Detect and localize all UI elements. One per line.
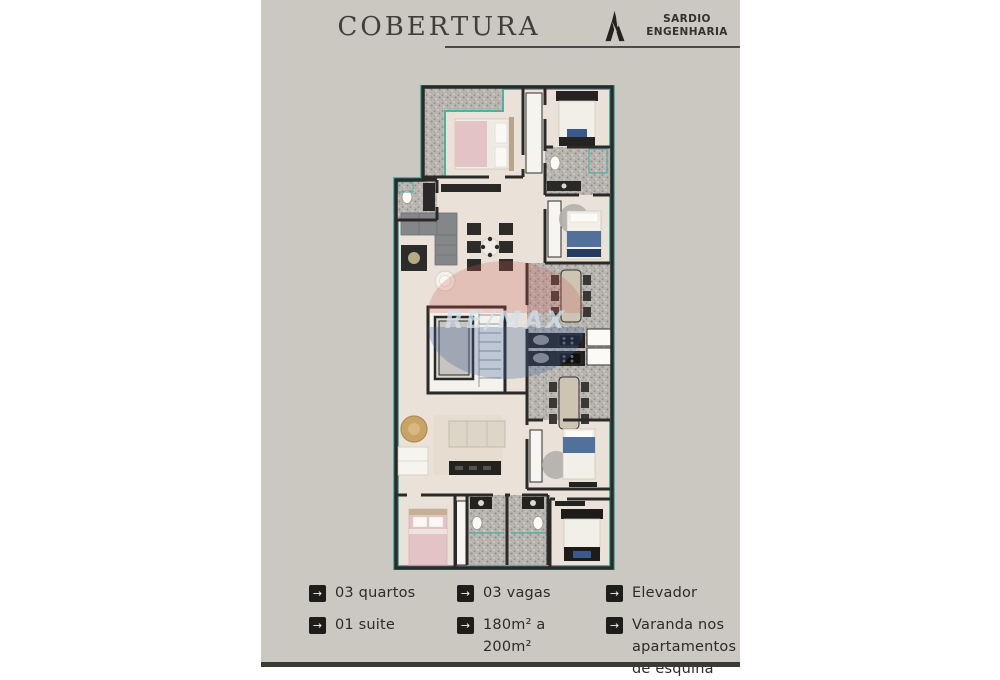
brand-logo: SARDIO ENGENHARIA: [597, 8, 739, 44]
feature-suite: → 01 suite: [309, 617, 395, 637]
brand-name-line1: SARDIO: [638, 13, 736, 26]
brand-name: SARDIO ENGENHARIA: [638, 13, 736, 38]
floor-plan: RE/MAX: [393, 85, 640, 570]
page-title: COBERTURA: [319, 12, 559, 42]
bedroom-bottom-left: [409, 501, 467, 565]
brand-name-line2: ENGENHARIA: [638, 26, 736, 39]
arrow-badge-icon: →: [457, 585, 474, 602]
sofa: [401, 213, 457, 235]
feature-label: 03 quartos: [335, 583, 415, 605]
feature-vagas: → 03 vagas: [457, 585, 551, 605]
feature-elevador: → Elevador: [606, 585, 697, 605]
arrow-badge-icon: →: [309, 617, 326, 634]
feature-label: Elevador: [632, 583, 697, 605]
wardrobe: [526, 93, 542, 173]
arrow-badge-icon: →: [606, 585, 623, 602]
bed-headboard: [556, 91, 598, 101]
wardrobe: [548, 201, 561, 257]
bedroom-right-lower: [530, 429, 597, 487]
arrow-badge-icon: →: [606, 617, 623, 634]
wardrobe: [530, 430, 542, 482]
sardio-mountain-logo-icon: [597, 8, 633, 44]
feature-label: Varanda nos apartamentos de esquina: [632, 615, 750, 680]
feature-label: 01 suite: [335, 615, 395, 637]
feature-metragem: → 180m² a 200m²: [457, 617, 563, 659]
feature-varanda: → Varanda nos apartamentos de esquina: [606, 617, 750, 680]
feature-label: 03 vagas: [483, 583, 551, 605]
footer-bar: [261, 662, 740, 667]
feature-label: 180m² a 200m²: [483, 615, 563, 659]
arrow-badge-icon: →: [309, 585, 326, 602]
bedroom-top-right: [556, 91, 598, 146]
flyer: COBERTURA SARDIO ENGENHARIA: [261, 0, 740, 667]
arrow-badge-icon: →: [457, 617, 474, 634]
toilet: [472, 517, 482, 530]
desk: [569, 482, 597, 487]
desk: [555, 501, 585, 506]
wardrobe: [457, 501, 467, 565]
bedroom-top-left: [455, 117, 514, 171]
sofa: [449, 421, 505, 447]
tv-console: [441, 184, 501, 192]
watermark-text: RE/MAX: [445, 306, 568, 334]
bed-headboard: [561, 509, 603, 519]
vanity: [423, 183, 435, 211]
floor-plan-drawing: RE/MAX: [393, 85, 640, 570]
toilet: [550, 156, 560, 170]
remax-watermark: RE/MAX: [428, 261, 584, 379]
header-divider: [445, 46, 740, 48]
feature-quartos: → 03 quartos: [309, 585, 415, 605]
